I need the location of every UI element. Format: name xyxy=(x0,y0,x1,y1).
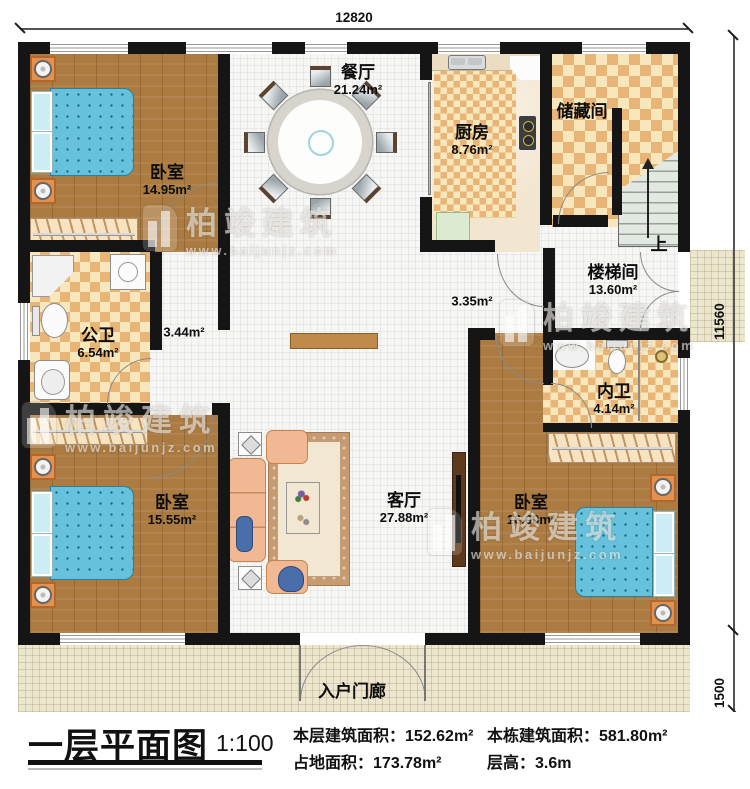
toilet xyxy=(41,303,68,338)
title-underline xyxy=(28,760,262,765)
dining-chair xyxy=(310,198,331,219)
washing-machine xyxy=(110,254,146,290)
room-name: 内卫 xyxy=(593,382,634,402)
wall xyxy=(543,340,553,385)
side-table xyxy=(238,566,262,590)
wall xyxy=(18,240,155,252)
stair-arrow-line xyxy=(647,168,649,238)
nightstand xyxy=(30,178,56,204)
stat-floor-area: 本层建筑面积：152.62m² xyxy=(293,722,474,746)
wall xyxy=(218,54,230,330)
dimension-line-top xyxy=(20,28,688,30)
sink-basin xyxy=(451,58,465,65)
up-text: 上 xyxy=(651,235,668,255)
wall xyxy=(612,108,622,215)
stat-total-area: 本栋建筑面积：581.80m² xyxy=(487,722,668,746)
nightstand xyxy=(30,582,56,608)
door-leaf-entry xyxy=(424,645,426,701)
toilet xyxy=(608,349,626,374)
nightstand xyxy=(650,600,676,626)
wall xyxy=(218,403,230,645)
room-name: 公卫 xyxy=(77,326,118,346)
plan-scale: 1:100 xyxy=(216,730,274,757)
lamp-icon xyxy=(654,478,672,496)
wall xyxy=(540,42,552,225)
pillow xyxy=(654,512,674,554)
stat-label: 本栋建筑面积： xyxy=(487,728,599,745)
wall xyxy=(468,333,480,633)
dining-chair xyxy=(310,66,331,87)
shower-partition xyxy=(638,336,640,421)
dimension-value-top: 12820 xyxy=(335,10,373,25)
room-label-hall-center: 3.35m² xyxy=(451,295,492,310)
nightstand xyxy=(30,56,56,82)
wardrobe-rail xyxy=(552,447,673,449)
bed xyxy=(575,507,653,597)
door-leaf-kitchen xyxy=(428,82,431,195)
room-name: 储藏间 xyxy=(557,102,608,122)
stat-value: 152.62m² xyxy=(405,728,474,745)
wardrobe xyxy=(548,433,676,463)
stat-footprint-area: 占地面积：173.78m² xyxy=(293,749,442,773)
bath-sink-cabinet xyxy=(34,360,70,400)
window xyxy=(60,633,185,645)
side-table xyxy=(238,432,262,456)
room-label-porch: 入户门廊 xyxy=(318,682,386,702)
room-name: 餐厅 xyxy=(334,63,382,83)
room-area: 21.24m² xyxy=(334,82,382,97)
bed xyxy=(50,486,134,580)
dimension-line-right xyxy=(733,36,735,711)
room-area: 3.44m² xyxy=(163,326,204,341)
stat-value: 173.78m² xyxy=(373,755,442,772)
room-label-bath-public: 公卫 6.54m² xyxy=(77,326,118,360)
wall xyxy=(678,42,690,252)
room-label-stairwell: 楼梯间 13.60m² xyxy=(588,263,639,297)
room-name: 卧室 xyxy=(507,493,555,513)
room-area: 4.14m² xyxy=(593,401,634,416)
stairs-up-label: 上 xyxy=(651,235,668,255)
side-table-lamp-icon xyxy=(241,569,261,589)
room-label-bath-private: 内卫 4.14m² xyxy=(593,382,634,416)
lamp-icon xyxy=(34,458,52,476)
room-area: 14.95m² xyxy=(143,182,191,197)
washer-drum-icon xyxy=(118,262,138,282)
kitchen-sink xyxy=(448,55,486,70)
window xyxy=(50,42,128,54)
room-label-storage: 储藏间 xyxy=(557,102,608,122)
dining-table xyxy=(268,90,372,194)
room-area: 27.88m² xyxy=(380,510,428,525)
lamp-icon xyxy=(34,586,52,604)
wardrobe xyxy=(30,417,148,445)
person-figure xyxy=(278,566,304,592)
door-leaf-entry xyxy=(299,645,301,701)
room-area: 3.35m² xyxy=(451,295,492,310)
room-label-bedroom2: 卧室 15.55m² xyxy=(148,493,196,527)
sink-basin xyxy=(468,58,482,65)
coffee-table xyxy=(286,482,320,534)
room-area: 16.00m² xyxy=(507,512,555,527)
sink-basin xyxy=(41,369,65,395)
room-label-living: 客厅 27.88m² xyxy=(380,491,428,525)
bed xyxy=(50,88,134,176)
stat-label: 层高： xyxy=(487,755,535,772)
lamp-icon xyxy=(34,182,52,200)
stat-value: 3.6m xyxy=(535,755,571,772)
stat-label: 本层建筑面积： xyxy=(293,728,405,745)
window xyxy=(18,303,30,360)
wardrobe-rail xyxy=(33,430,144,432)
wall xyxy=(420,240,495,252)
room-area: 13.60m² xyxy=(588,282,639,297)
wall xyxy=(420,54,432,80)
room-area: 8.76m² xyxy=(451,142,492,157)
wall xyxy=(150,252,162,350)
dimension-value-right: 11560 xyxy=(712,270,727,340)
room-name: 入户门廊 xyxy=(318,682,386,702)
table-center-decor xyxy=(308,130,334,156)
wardrobe-rail xyxy=(33,233,135,235)
tv-icon xyxy=(456,475,461,543)
toilet-tank xyxy=(606,340,628,348)
room-area: 6.54m² xyxy=(77,345,118,360)
burner-icon xyxy=(523,121,534,132)
room-label-bedroom1: 卧室 14.95m² xyxy=(143,163,191,197)
lamp-icon xyxy=(654,604,672,622)
window xyxy=(186,42,272,54)
pillow xyxy=(32,132,52,172)
nightstand xyxy=(650,474,676,502)
room-name: 卧室 xyxy=(143,163,191,183)
dimension-value-porch: 1500 xyxy=(712,652,727,708)
stove xyxy=(519,116,536,150)
window xyxy=(305,42,347,54)
pillow xyxy=(32,92,52,132)
room-label-bedroom3: 卧室 16.00m² xyxy=(507,493,555,527)
pillow xyxy=(32,534,52,576)
room-name: 厨房 xyxy=(451,123,492,143)
pillow xyxy=(654,554,674,596)
lamp-icon xyxy=(34,60,52,78)
window xyxy=(678,358,690,410)
armchair xyxy=(266,430,308,464)
bath-sink xyxy=(555,344,589,368)
title-block: 一层平面图 1:100 本层建筑面积：152.62m² 占地面积：173.78m… xyxy=(0,712,750,789)
burner-icon xyxy=(523,135,534,146)
room-label-kitchen: 厨房 8.76m² xyxy=(451,123,492,157)
window xyxy=(582,42,646,54)
pillow xyxy=(32,492,52,534)
room-name: 客厅 xyxy=(380,491,428,511)
side-table-lamp-icon xyxy=(241,435,261,455)
stair-arrow-head-icon xyxy=(642,158,654,169)
stat-label: 占地面积： xyxy=(293,755,373,772)
console-table xyxy=(290,333,378,349)
nightstand xyxy=(30,454,56,480)
toilet-tank xyxy=(32,306,40,336)
stat-floor-height: 层高：3.6m xyxy=(487,749,571,773)
floor-drain-icon xyxy=(655,350,668,363)
window xyxy=(545,633,640,645)
wall xyxy=(543,248,555,328)
title-underline-thin xyxy=(28,768,262,770)
room-label-dining: 餐厅 21.24m² xyxy=(334,63,382,97)
floor-plan-page: 卧室 14.95m² 餐厅 21.24m² 厨房 8.76m² 储藏间 楼梯间 … xyxy=(0,0,750,789)
window xyxy=(438,42,500,54)
dining-chair xyxy=(376,132,397,153)
room-label-hall-left: 3.44m² xyxy=(163,326,204,341)
room-name: 卧室 xyxy=(148,493,196,513)
wall xyxy=(18,403,150,415)
room-name: 楼梯间 xyxy=(588,263,639,283)
room-area: 15.55m² xyxy=(148,512,196,527)
wall xyxy=(212,403,230,415)
stat-value: 581.80m² xyxy=(599,728,668,745)
person-figure xyxy=(236,516,253,552)
tv-cabinet xyxy=(452,452,466,567)
dining-chair xyxy=(244,132,265,153)
